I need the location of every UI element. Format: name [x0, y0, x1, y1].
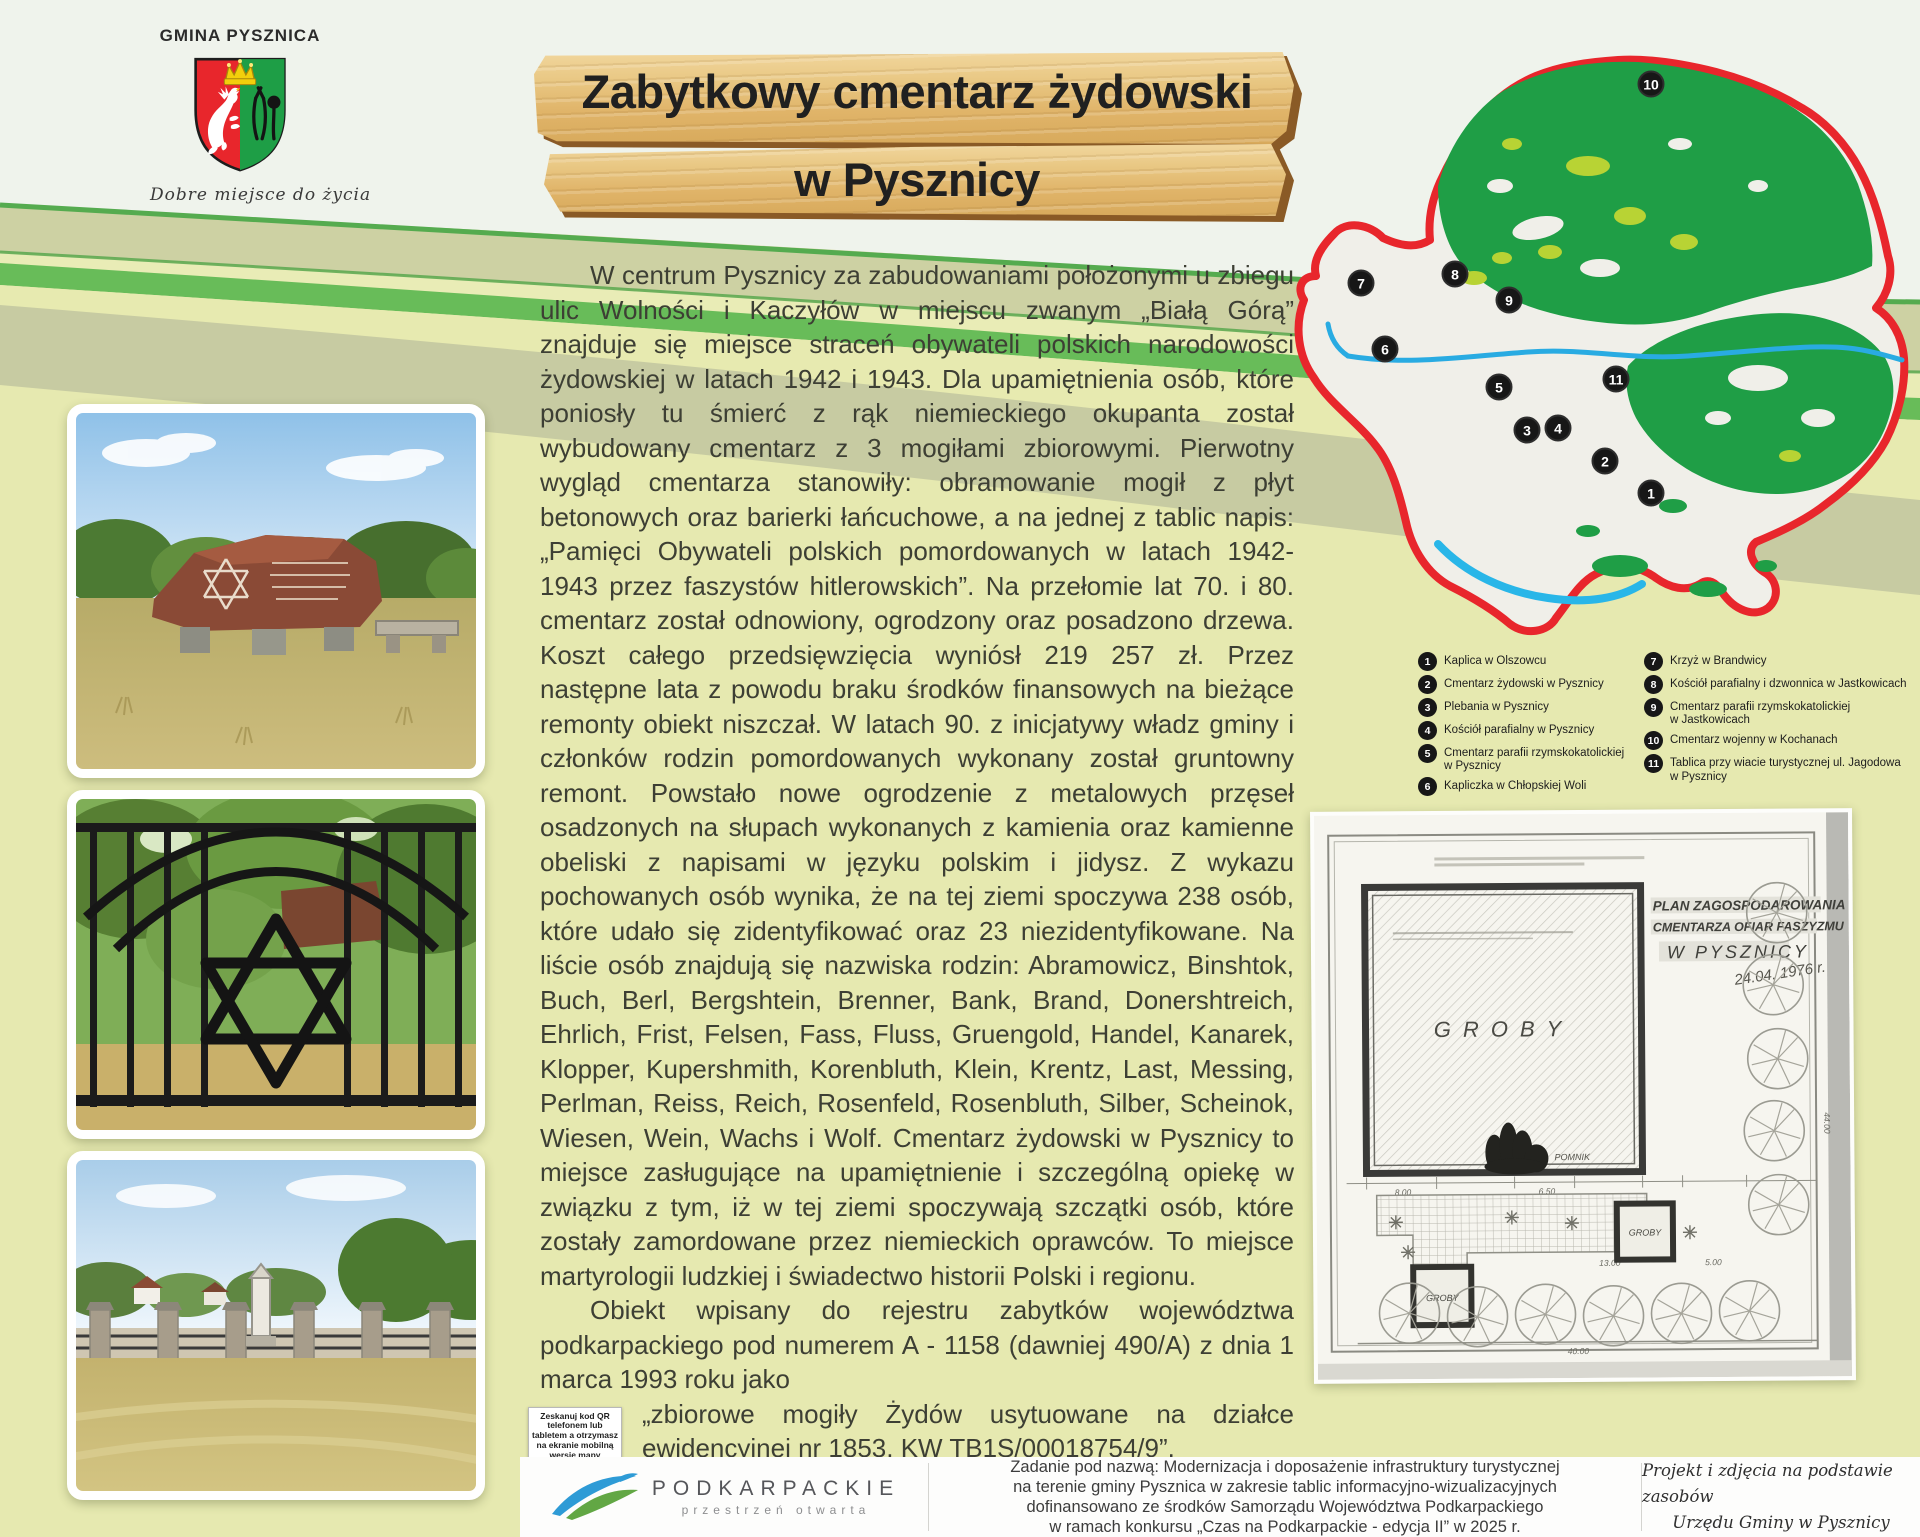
legend-dot: 10 [1644, 731, 1663, 750]
legend-dot: 7 [1644, 652, 1663, 671]
legend-dot: 8 [1644, 675, 1663, 694]
plan-drawing: GROBY PLAN ZAGOSPODAROWANIA CMENTARZA OF… [1314, 812, 1852, 1380]
legend-dot: 9 [1644, 698, 1663, 717]
municipality-motto: Dobre miejsce do życia [150, 185, 330, 205]
photo-monument [67, 404, 485, 778]
legend-item-6: 6Kapliczka w Chłopskiej Woli [1418, 777, 1644, 796]
legend-item-2: 2Cmentarz żydowski w Pysznicy [1418, 675, 1644, 694]
legend-dot: 6 [1418, 777, 1437, 796]
map-marker-1: 1 [1638, 480, 1665, 507]
legend-dot: 4 [1418, 721, 1437, 740]
legend-item-7: 7Krzyż w Brandwicy [1644, 652, 1910, 671]
article-paragraph-2-quote: „zbiorowe mogiły Żydów usytuowane na dzi… [540, 1397, 1294, 1466]
map-marker-9: 9 [1496, 287, 1523, 314]
legend-item-8: 8Kościół parafialny i dzwonnica w Jastko… [1644, 675, 1910, 694]
legend-dot: 1 [1418, 652, 1437, 671]
svg-text:40.00: 40.00 [1568, 1346, 1590, 1356]
municipality-name: GMINA PYSZNICA [150, 26, 330, 46]
map-marker-2: 2 [1592, 448, 1619, 475]
map-marker-4: 4 [1545, 415, 1572, 442]
page-title-line1: Zabytkowy cmentarz żydowski [528, 64, 1306, 119]
article-paragraph-2: Obiekt wpisany do rejestru zabytków woje… [540, 1293, 1294, 1397]
map-legend: 1Kaplica w Olszowcu 2Cmentarz żydowski w… [1418, 652, 1910, 800]
legend-item-1: 1Kaplica w Olszowcu [1418, 652, 1644, 671]
photo-fence-star [67, 790, 485, 1139]
monument-behind-fence [281, 881, 388, 949]
map-marker-8: 8 [1442, 261, 1469, 288]
map-marker-7: 7 [1348, 270, 1375, 297]
svg-text:44.00: 44.00 [1822, 1112, 1832, 1134]
funding-note: Zadanie pod nazwą: Modernizacja i doposa… [929, 1457, 1641, 1537]
legend-dot: 5 [1418, 744, 1437, 763]
page-title-line2: w Pysznicy [528, 152, 1306, 207]
legend-dot: 11 [1644, 754, 1663, 773]
design-credit: Projekt i zdjęcia na podstawie zasobów U… [1642, 1457, 1920, 1537]
article-paragraph-1: W centrum Pysznicy za zabudowaniami poło… [540, 258, 1294, 1293]
legend-dot: 2 [1418, 675, 1437, 694]
map-marker-5: 5 [1486, 374, 1513, 401]
information-board: GMINA PYSZNICA [0, 0, 1920, 1537]
coat-of-arms-icon [184, 50, 296, 174]
svg-text:GROBY: GROBY [1434, 1016, 1574, 1042]
cemetery-plan-scan: GROBY PLAN ZAGOSPODAROWANIA CMENTARZA OF… [1310, 808, 1856, 1384]
legend-item-10: 10Cmentarz wojenny w Kochanach [1644, 731, 1910, 750]
north-forest [1438, 62, 1872, 325]
brand-name: PODKARPACKIE [652, 1477, 900, 1501]
legend-item-11: 11Tablica przy wiacie turystycznej ul. J… [1644, 754, 1910, 783]
municipality-map: 1 2 3 4 5 6 7 8 9 10 11 [1288, 26, 1920, 648]
legend-dot: 3 [1418, 698, 1437, 717]
map-marker-3: 3 [1514, 417, 1541, 444]
legend-item-4: 4Kościół parafialny w Pysznicy [1418, 721, 1644, 740]
qr-caption: Zeskanuj kod QR telefonem lub tabletem a… [532, 1412, 618, 1461]
legend-item-5: 5Cmentarz parafii rzymskokatolickiejw Py… [1418, 744, 1644, 773]
podkarpackie-swoosh-icon [548, 1468, 640, 1526]
legend-item-3: 3Plebania w Pysznicy [1418, 698, 1644, 717]
map-marker-11: 11 [1603, 366, 1630, 393]
svg-text:POMNIK: POMNIK [1554, 1152, 1591, 1162]
footer: PODKARPACKIE przestrzeń otwarta Zadanie … [520, 1457, 1920, 1537]
municipality-crest: GMINA PYSZNICA [150, 26, 330, 205]
article-text: W centrum Pysznicy za zabudowaniami poło… [540, 258, 1294, 1537]
title-board: Zabytkowy cmentarz żydowski w Pysznicy [528, 40, 1306, 220]
map-marker-6: 6 [1372, 336, 1399, 363]
brand-subtitle: przestrzeń otwarta [652, 1503, 900, 1517]
legend-item-9: 9Cmentarz parafii rzymskokatolickiejw Ja… [1644, 698, 1910, 727]
svg-text:GROBY: GROBY [1629, 1227, 1663, 1237]
map-marker-10: 10 [1638, 71, 1665, 98]
photo-cemetery-view [67, 1151, 485, 1500]
podkarpackie-logo: PODKARPACKIE przestrzeń otwarta [520, 1457, 928, 1537]
svg-text:5.00: 5.00 [1705, 1257, 1722, 1267]
